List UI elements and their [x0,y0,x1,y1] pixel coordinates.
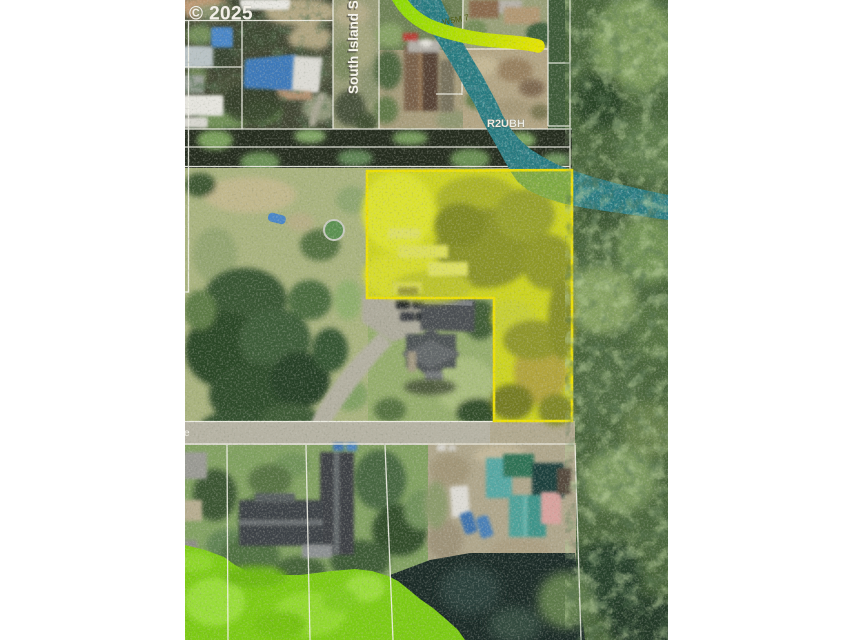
svg-text:R2UBH: R2UBH [487,118,525,130]
svg-text:South Island Stre: South Island Stre [346,0,361,94]
svg-text:© 2025: © 2025 [189,4,253,25]
